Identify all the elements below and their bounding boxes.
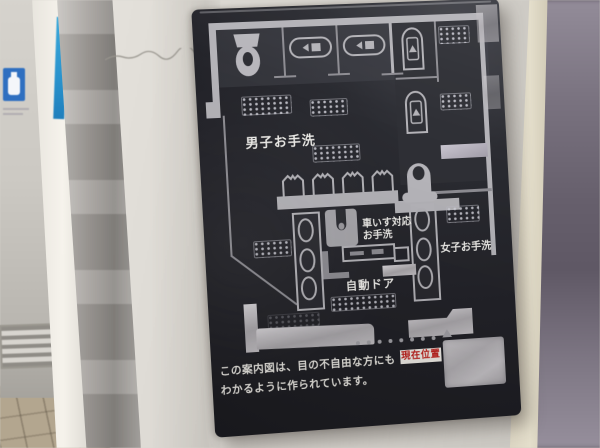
auto-door-outline [342, 243, 396, 262]
bottle-sign [3, 68, 25, 101]
auto-door-label: 自動ドア [345, 275, 395, 294]
western-toilet-icon [229, 31, 266, 79]
braille-plate [312, 143, 361, 162]
floor-plan: 現在位置 男子お手洗 車いす対応 お手洗 女子お手洗 自動ドア この案内図は、目… [191, 0, 521, 438]
squat-toilet-vertical-icon [402, 88, 430, 135]
squat-toilet-icon [342, 33, 387, 57]
braille-plate [253, 239, 292, 258]
fine-print-line [3, 108, 29, 110]
wall-left-thin [223, 116, 233, 257]
braille-plate [309, 98, 348, 117]
worn-touch-plate [443, 336, 507, 388]
squat-toilet-icon [288, 36, 333, 60]
accessible-toilet-icon [398, 155, 440, 205]
braille-plate [446, 205, 480, 224]
squat-toilet-vertical-icon [399, 25, 427, 72]
worn-patch [441, 143, 488, 159]
braille-plate [438, 25, 470, 44]
worn-corner-fragment [476, 4, 499, 42]
wheelchair-label-line2: お手洗 [362, 225, 392, 242]
urinal-icon [339, 168, 366, 194]
bottle-icon [8, 77, 20, 95]
braille-plate [440, 92, 472, 110]
worn-corner-fragment [484, 75, 501, 109]
current-location-badge: 現在位置 [400, 348, 442, 365]
mens-restroom-label: 男子お手洗 [245, 129, 316, 152]
door-square-outline [393, 246, 410, 262]
braille-plate [330, 293, 396, 312]
braille-plate [241, 94, 292, 115]
urinal-icon [309, 170, 336, 196]
urinal-icon [369, 166, 396, 192]
urinal-icon [279, 171, 306, 197]
wall-left-step [206, 102, 221, 119]
photo-scene: 現在位置 男子お手洗 車いす対応 お手洗 女子お手洗 自動ドア この案内図は、目… [0, 0, 600, 448]
womens-restroom-label: 女子お手洗 [440, 237, 492, 255]
fine-print-line [3, 113, 23, 115]
location-triangle-icon [442, 329, 452, 338]
wheelchair-toilet-icon [324, 207, 360, 249]
wall-diagonal [230, 255, 297, 306]
worn-bottom-wall [408, 308, 474, 338]
tactile-restroom-sign: 現在位置 男子お手洗 車いす対応 お手洗 女子お手洗 自動ドア この案内図は、目… [191, 0, 521, 438]
